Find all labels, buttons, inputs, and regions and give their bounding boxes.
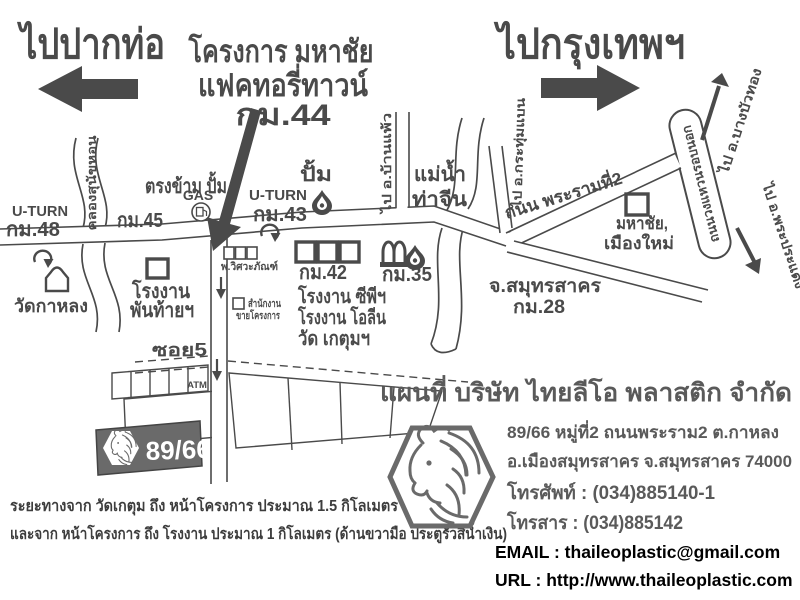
km42-label: กม.42 (299, 262, 347, 284)
km48-label: กม.48 (6, 219, 60, 241)
samutsakhon-label: จ.สมุทรสาคร (489, 276, 602, 298)
factory-olean-label: โรงงาน โอลีน (297, 306, 386, 329)
destination-bangkok: ไปกรุงเทพฯ (493, 20, 685, 70)
distance-note-line1: ระยะทางจาก วัดเกตุม ถึง หน้าโครงการ ประม… (10, 496, 399, 516)
uturn-icon-km48 (34, 251, 53, 268)
to-krathumbaen-label: ไป อ.กระทุ่มแบน (509, 97, 529, 210)
company-fax: โทรสาร : (034)885142 (506, 511, 683, 534)
uturn48-label: U-TURN (12, 203, 68, 220)
company-address-line2: อ.เมืองสมุทรสาคร จ.สมุทรสาคร 74000 (507, 451, 792, 472)
up-arrow-icon (711, 73, 729, 87)
factory-icon-phanthai (147, 259, 168, 278)
map-page: 89/66 ถนนวงแหวนรอบนอก ไปปากท่อ (0, 0, 800, 600)
project-plot-8966: 89/66 (96, 421, 211, 475)
mahachai-label-line2: เมืองใหม่ (604, 233, 674, 253)
project-title-line1: โครงการ มหาชัย (188, 33, 374, 69)
gas-station-icon (192, 203, 210, 221)
pump-label: ปั้ม (300, 159, 332, 186)
company-block: แผนที่ บริษัท ไทยลีโอ พลาสติก จำกัด 89/6… (380, 375, 793, 590)
factory-cp-label: โรงงาน ซีพีฯ (297, 285, 386, 308)
company-address-line1: 89/66 หมู่ที่2 ถนนพระราม2 ต.กาหลง (507, 420, 779, 444)
company-title: แผนที่ บริษัท ไทยลีโอ พลาสติก จำกัด (380, 375, 792, 407)
wat-ketum-label: วัด เกตุมฯ (298, 328, 370, 351)
sales-office-icon (233, 298, 244, 309)
uturn43-label: U-TURN (249, 187, 307, 204)
atm-label: ATM (187, 380, 207, 391)
company-phone: โทรศัพท์ : (034)885140-1 (506, 481, 715, 504)
river-label-line2: ท่าจีน (412, 188, 467, 211)
factory-phanthai-label-line2: พันท้ายฯ (130, 299, 194, 322)
fuel-station-icon-km43 (312, 190, 332, 215)
temple-icon (46, 268, 68, 292)
canal-label: คลองสุนัขหอน (85, 135, 100, 231)
map-canvas: 89/66 ถนนวงแหวนรอบนอก ไปปากท่อ (0, 0, 800, 600)
project-title-line2: แฟคทอรี่ทาวน์ (198, 63, 368, 103)
river-label-line1: แม่น้ำ (414, 159, 466, 186)
km28-label: กม.28 (513, 297, 565, 318)
soi5-label: ซอย5 (152, 340, 207, 360)
plot-number-label: 89/66 (145, 434, 211, 466)
right-arrow-icon (541, 65, 640, 111)
km45-label: กม.45 (117, 210, 163, 232)
destination-pak-tho: ไปปากท่อ (17, 20, 165, 67)
factory-icon-km42-3 (340, 242, 359, 262)
company-email: EMAIL : thaileoplastic@gmail.com (495, 542, 780, 562)
to-banphaeo-label: ไป อ.บ้านแพ้ว (379, 113, 394, 216)
left-arrow-icon (38, 66, 138, 112)
engineering-shop-label: พ.วิศวะภัณฑ์ (221, 260, 278, 273)
wat-kalong-label: วัดกาหลง (14, 296, 88, 316)
sales-office-label-line1: สำนักงาน (248, 298, 282, 310)
factory-icon-km42-1 (296, 242, 315, 262)
outer-ring-road: ถนนวงแหวนรอบนอก (666, 106, 734, 261)
sales-office-label-line2: ขายโครงการ (236, 309, 280, 322)
gas-label: GAS (183, 187, 213, 203)
km43-label: กม.43 (253, 204, 307, 226)
km35-label: กม.35 (382, 264, 432, 286)
mahachai-label-line1: มหาชัย, (616, 214, 668, 233)
company-url: URL : http://www.thaileoplastic.com (495, 570, 793, 590)
to-phrapradaeng-label: ไป อ.พระประแดง (759, 179, 800, 291)
mahachai-block-icon (626, 194, 648, 215)
factory-icon-km42-2 (318, 242, 337, 262)
